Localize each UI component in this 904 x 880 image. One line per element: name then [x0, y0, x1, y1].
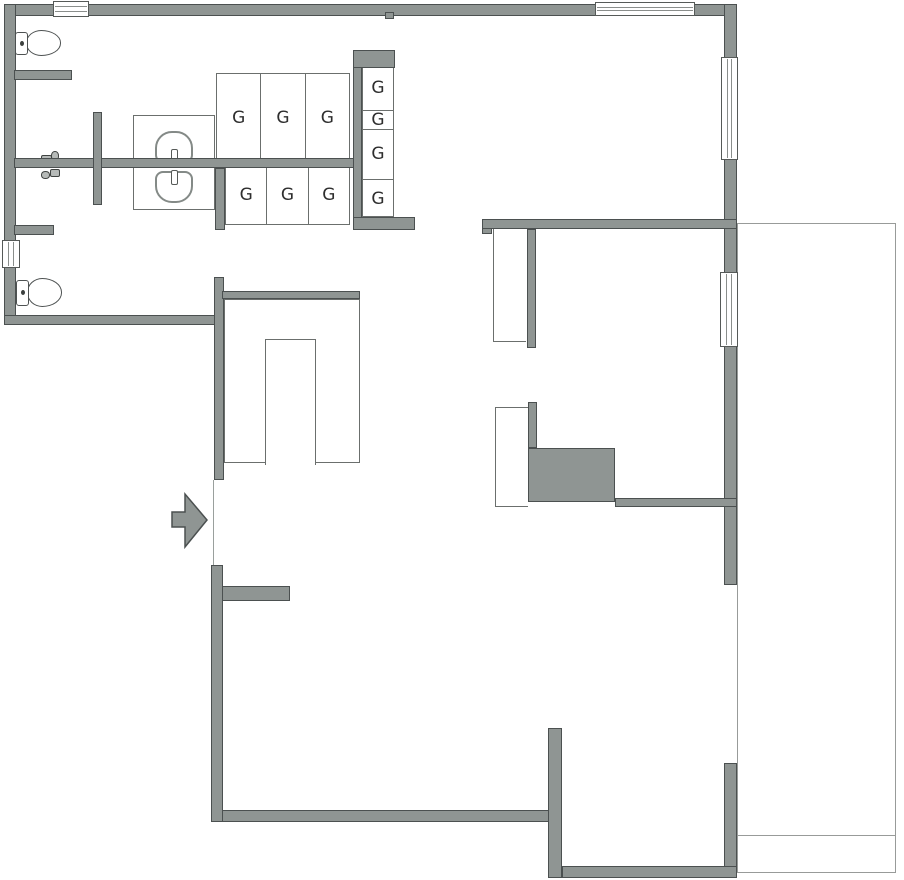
- arrow-right-icon: [170, 490, 212, 552]
- wall-room-divider-lower: [528, 402, 537, 448]
- locker-cell: G: [363, 110, 393, 129]
- wall-top-notch: [385, 12, 394, 19]
- locker-cell: G: [363, 129, 393, 179]
- solid-block: [528, 448, 615, 502]
- toilet-bowl: [27, 278, 62, 307]
- wall-partition-stub-vertical: [93, 112, 102, 205]
- wall-stair-top: [222, 291, 360, 299]
- locker-cell: G: [266, 167, 307, 224]
- wall-locker-bottom: [353, 217, 415, 230]
- wall-bottom-right: [562, 866, 737, 878]
- wall-restroom-bottom: [4, 315, 215, 325]
- wall-rooms-horizontal-tab: [482, 228, 492, 234]
- locker-cell: G: [363, 179, 393, 218]
- faucet-icon: [39, 166, 64, 180]
- wall-right-lower: [724, 763, 737, 878]
- locker-cell: G: [226, 167, 266, 224]
- wall-locker-column: [353, 52, 362, 230]
- wall-locker-divider-stub: [215, 168, 225, 230]
- floor-plan: G G G G G G G G G G: [0, 0, 904, 880]
- wall-washroom-partition: [14, 158, 358, 168]
- wall-step-vertical: [548, 728, 562, 878]
- toilet-icon: [16, 278, 64, 309]
- window-symbol: [720, 272, 738, 347]
- entrance-threshold-line: [213, 480, 214, 566]
- annex-outline: [737, 223, 896, 873]
- stairs-well-notch: [265, 339, 316, 465]
- wall-stub-toilet1: [14, 70, 72, 80]
- window-symbol: [595, 2, 695, 16]
- locker-row-bottom: G G G: [225, 166, 350, 225]
- locker-column: G G G G: [362, 66, 394, 217]
- wall-entry-stub: [222, 586, 290, 601]
- locker-cell: G: [217, 74, 260, 162]
- locker-cell: G: [363, 67, 393, 110]
- wall-stair-vertical: [214, 277, 224, 480]
- closet-upper-right: [493, 229, 526, 342]
- toilet-flush-dot: [20, 41, 24, 46]
- closet-lower-right: [495, 407, 528, 507]
- wall-entry-left: [211, 565, 223, 822]
- locker-cell: G: [308, 167, 349, 224]
- toilet-icon: [15, 30, 63, 58]
- wall-block-horizontal: [615, 498, 737, 507]
- wall-stub-toilet2: [14, 225, 54, 235]
- toilet-flush-dot: [21, 290, 25, 295]
- wall-room-divider-upper: [527, 229, 536, 348]
- locker-cell: G: [260, 74, 304, 162]
- wall-locker-cap: [353, 50, 395, 68]
- window-symbol: [2, 240, 20, 268]
- locker-row-top: G G G: [216, 73, 350, 163]
- locker-cell: G: [305, 74, 349, 162]
- wall-rooms-horizontal: [482, 219, 737, 229]
- tap-icon: [171, 170, 178, 185]
- annex-divider-line: [738, 835, 895, 836]
- window-symbol: [53, 1, 89, 17]
- window-symbol: [721, 57, 738, 160]
- toilet-bowl: [26, 30, 61, 56]
- wall-bottom-left: [211, 810, 562, 822]
